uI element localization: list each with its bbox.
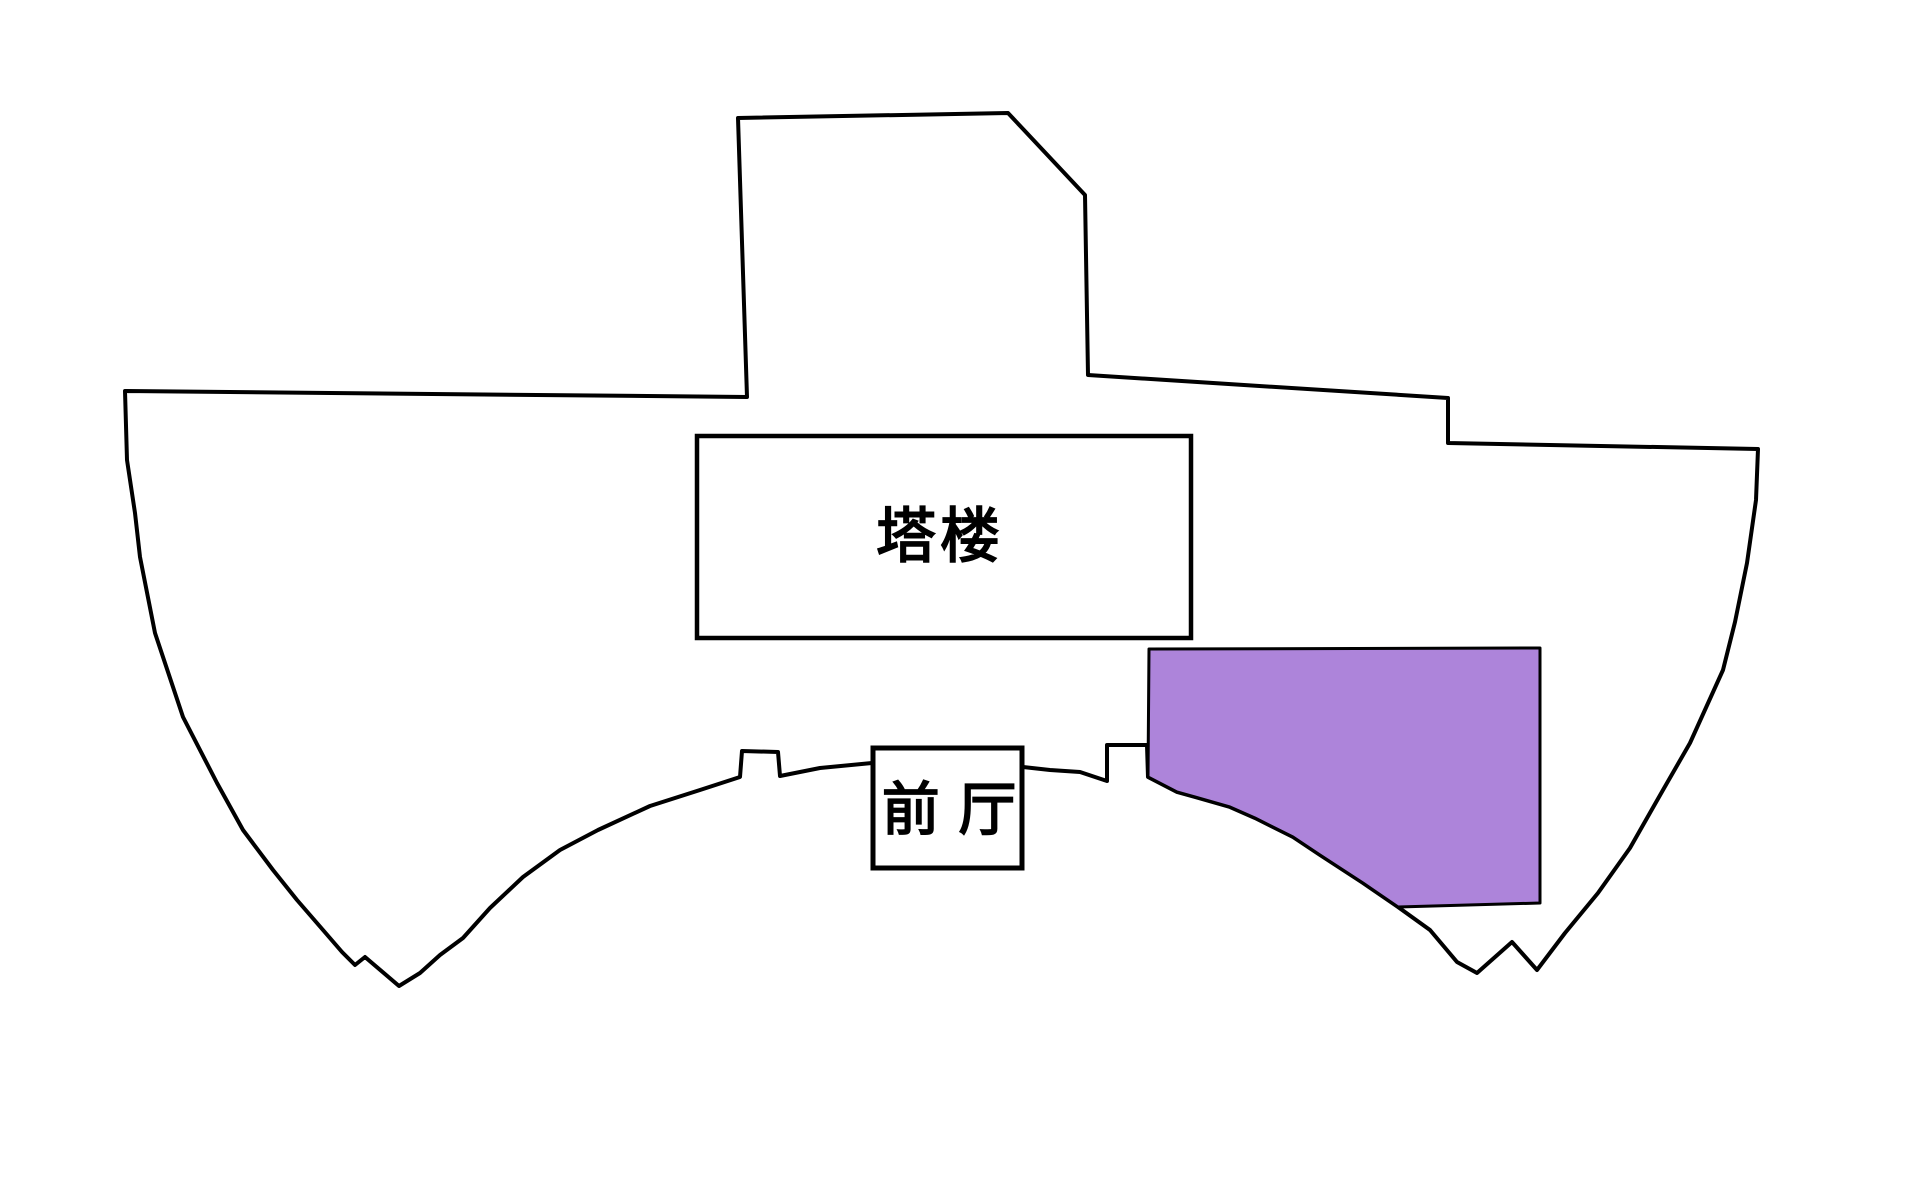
- front-hall-label: 前 厅: [882, 778, 1019, 843]
- floor-plan-canvas: 塔楼 前 厅: [0, 0, 1905, 1188]
- tower-label: 塔楼: [876, 504, 1004, 570]
- floor-plan: 塔楼 前 厅: [0, 0, 1905, 1188]
- highlighted-room: [1148, 648, 1540, 907]
